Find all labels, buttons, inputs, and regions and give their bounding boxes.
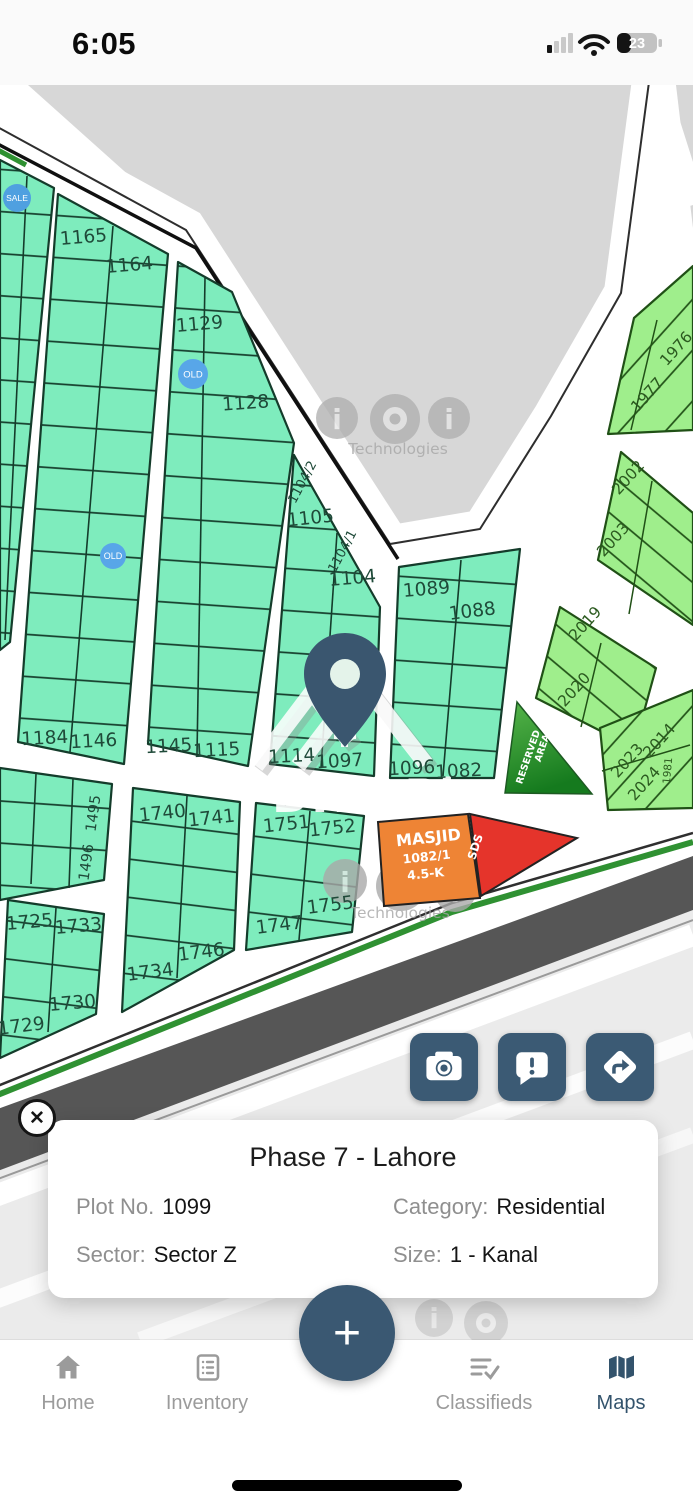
plot-info-card: Phase 7 - Lahore Plot No.1099 Category:R… xyxy=(48,1120,658,1298)
nav-item-inventory[interactable]: Inventory xyxy=(147,1352,267,1415)
plot-label-1129: 1129 xyxy=(175,312,224,337)
maps-icon xyxy=(605,1352,637,1382)
svg-text:i: i xyxy=(444,403,454,436)
plot-label-1733: 1733 xyxy=(54,914,103,939)
status-time: 6:05 xyxy=(72,26,136,62)
sale-badge[interactable]: SALE xyxy=(3,184,31,212)
status-bar: 6:05 23 xyxy=(0,0,693,85)
svg-text:OLD: OLD xyxy=(183,370,203,381)
nav-item-maps[interactable]: Maps xyxy=(561,1352,681,1415)
report-button[interactable] xyxy=(498,1033,566,1101)
battery-icon: 23 xyxy=(617,33,662,53)
plot-label-1164: 1164 xyxy=(105,253,154,278)
plot-label-1097: 1097 xyxy=(316,750,364,773)
report-comment-icon xyxy=(511,1046,553,1088)
add-button[interactable]: + xyxy=(299,1285,395,1381)
plot-label-1128: 1128 xyxy=(221,391,269,415)
plot-label-1096: 1096 xyxy=(388,757,436,780)
plot-label-1165: 1165 xyxy=(59,225,108,250)
close-icon: ✕ xyxy=(29,1107,45,1130)
old-badge-2[interactable]: OLD xyxy=(100,543,126,569)
nav-item-home[interactable]: Home xyxy=(8,1352,128,1415)
plot-label-1104: 1104 xyxy=(328,566,377,591)
plot-label-1082: 1082 xyxy=(435,760,483,783)
svg-text:Technologies: Technologies xyxy=(349,904,450,922)
home-indicator[interactable] xyxy=(232,1480,462,1491)
directions-button[interactable] xyxy=(586,1033,654,1101)
svg-text:i: i xyxy=(332,403,342,436)
home-icon xyxy=(52,1352,84,1382)
svg-text:SALE: SALE xyxy=(6,193,28,203)
field-size: Size:1 - Kanal xyxy=(393,1242,538,1268)
plot-label-1089: 1089 xyxy=(402,577,451,602)
field-category: Category:Residential xyxy=(393,1194,605,1220)
plus-icon: + xyxy=(333,1306,361,1361)
field-plot-no: Plot No.1099 xyxy=(76,1194,211,1220)
camera-button[interactable] xyxy=(410,1033,478,1101)
plot-label-1184: 1184 xyxy=(21,727,69,750)
ioi-watermark-text: Technologies xyxy=(347,440,448,458)
plot-label-1725: 1725 xyxy=(5,910,54,935)
camera-icon xyxy=(422,1045,466,1089)
card-title: Phase 7 - Lahore xyxy=(48,1142,658,1173)
svg-text:i: i xyxy=(429,1302,439,1335)
plot-label-1114: 1114 xyxy=(268,745,316,768)
inventory-icon xyxy=(191,1352,223,1382)
old-badge-1[interactable]: OLD xyxy=(178,359,208,389)
directions-icon xyxy=(598,1045,642,1089)
wifi-icon xyxy=(580,36,608,56)
plot-label-1115: 1115 xyxy=(193,739,241,762)
field-sector: Sector:Sector Z xyxy=(76,1242,237,1268)
classifieds-icon xyxy=(467,1352,501,1382)
svg-text:OLD: OLD xyxy=(104,551,123,561)
battery-percent: 23 xyxy=(629,36,645,52)
plot-label-1981: 1981 xyxy=(661,757,675,785)
close-card-button[interactable]: ✕ xyxy=(18,1099,56,1137)
plot-label-1145: 1145 xyxy=(145,735,193,758)
plot-label-1730: 1730 xyxy=(48,991,97,1016)
plot-label-1146: 1146 xyxy=(70,730,118,753)
app-screen: i i Technologies i i Technologies DHA Pl… xyxy=(0,0,693,1500)
nav-item-classifieds[interactable]: Classifieds xyxy=(424,1352,544,1415)
masjid-plot[interactable]: MASJID 1082/1 4.5-K xyxy=(378,814,480,906)
signal-icon xyxy=(547,33,573,53)
